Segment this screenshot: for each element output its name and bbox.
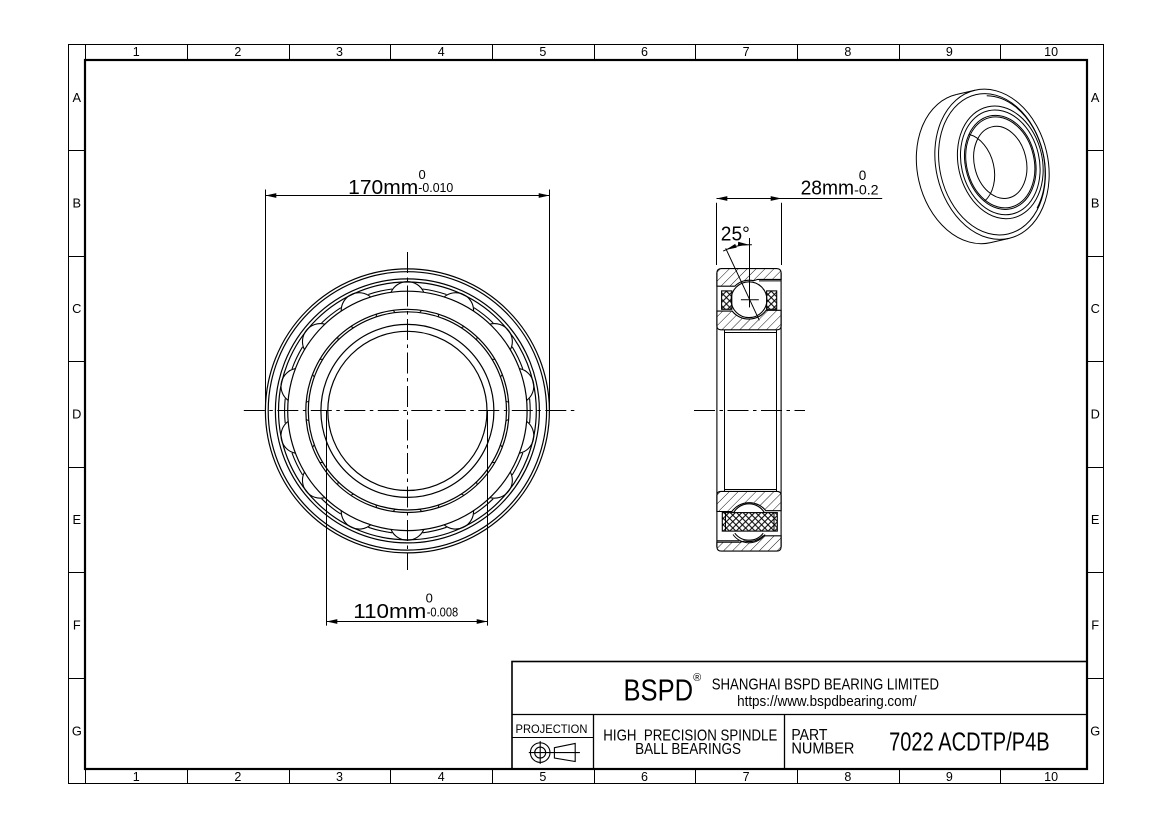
svg-text:25°: 25°: [721, 224, 750, 246]
svg-text:®: ®: [693, 672, 701, 684]
svg-text:A: A: [1091, 90, 1100, 105]
svg-text:4: 4: [438, 45, 445, 59]
svg-text:B: B: [73, 196, 82, 211]
svg-text:7: 7: [743, 770, 750, 784]
svg-text:F: F: [73, 618, 81, 633]
svg-text:https://www.bspdbearing.com/: https://www.bspdbearing.com/: [737, 693, 917, 710]
svg-text:PROJECTION: PROJECTION: [516, 724, 588, 736]
svg-text:8: 8: [844, 770, 851, 784]
svg-text:D: D: [72, 407, 81, 422]
svg-text:9: 9: [946, 770, 953, 784]
svg-text:C: C: [72, 301, 81, 316]
svg-text:A: A: [73, 90, 82, 105]
svg-text:10: 10: [1044, 45, 1058, 59]
svg-text:9: 9: [946, 45, 953, 59]
svg-text:5: 5: [539, 45, 546, 59]
svg-text:5: 5: [539, 770, 546, 784]
svg-text:6: 6: [641, 770, 648, 784]
svg-text:G: G: [72, 723, 82, 738]
svg-text:3: 3: [336, 770, 343, 784]
svg-text:G: G: [1090, 723, 1100, 738]
svg-text:10: 10: [1044, 770, 1058, 784]
svg-text:170mm: 170mm: [348, 177, 418, 199]
svg-text:4: 4: [438, 770, 445, 784]
svg-text:E: E: [73, 512, 82, 527]
svg-text:-0.008: -0.008: [427, 605, 459, 620]
svg-text:2: 2: [234, 770, 241, 784]
svg-text:1: 1: [133, 770, 140, 784]
svg-text:3: 3: [336, 45, 343, 59]
svg-text:E: E: [1091, 512, 1100, 527]
svg-text:8: 8: [844, 45, 851, 59]
svg-text:0: 0: [859, 168, 867, 183]
svg-text:28mm: 28mm: [801, 178, 855, 200]
svg-text:C: C: [1091, 301, 1100, 316]
svg-text:1: 1: [133, 45, 140, 59]
svg-text:7: 7: [743, 45, 750, 59]
svg-text:BALL BEARINGS: BALL BEARINGS: [635, 741, 741, 758]
svg-text:7022 ACDTP/P4B: 7022 ACDTP/P4B: [889, 729, 1050, 757]
svg-text:BSPD: BSPD: [624, 672, 694, 707]
svg-text:B: B: [1091, 196, 1100, 211]
svg-text:2: 2: [234, 45, 241, 59]
svg-text:0: 0: [426, 590, 433, 605]
svg-text:NUMBER: NUMBER: [791, 740, 854, 757]
svg-text:6: 6: [641, 45, 648, 59]
svg-text:-0.2: -0.2: [854, 183, 879, 198]
svg-text:110mm: 110mm: [353, 601, 426, 623]
svg-text:F: F: [1091, 618, 1099, 633]
svg-text:D: D: [1091, 407, 1100, 422]
svg-text:SHANGHAI BSPD BEARING LIMITED: SHANGHAI BSPD BEARING LIMITED: [712, 676, 939, 693]
svg-text:-0.010: -0.010: [418, 180, 453, 195]
